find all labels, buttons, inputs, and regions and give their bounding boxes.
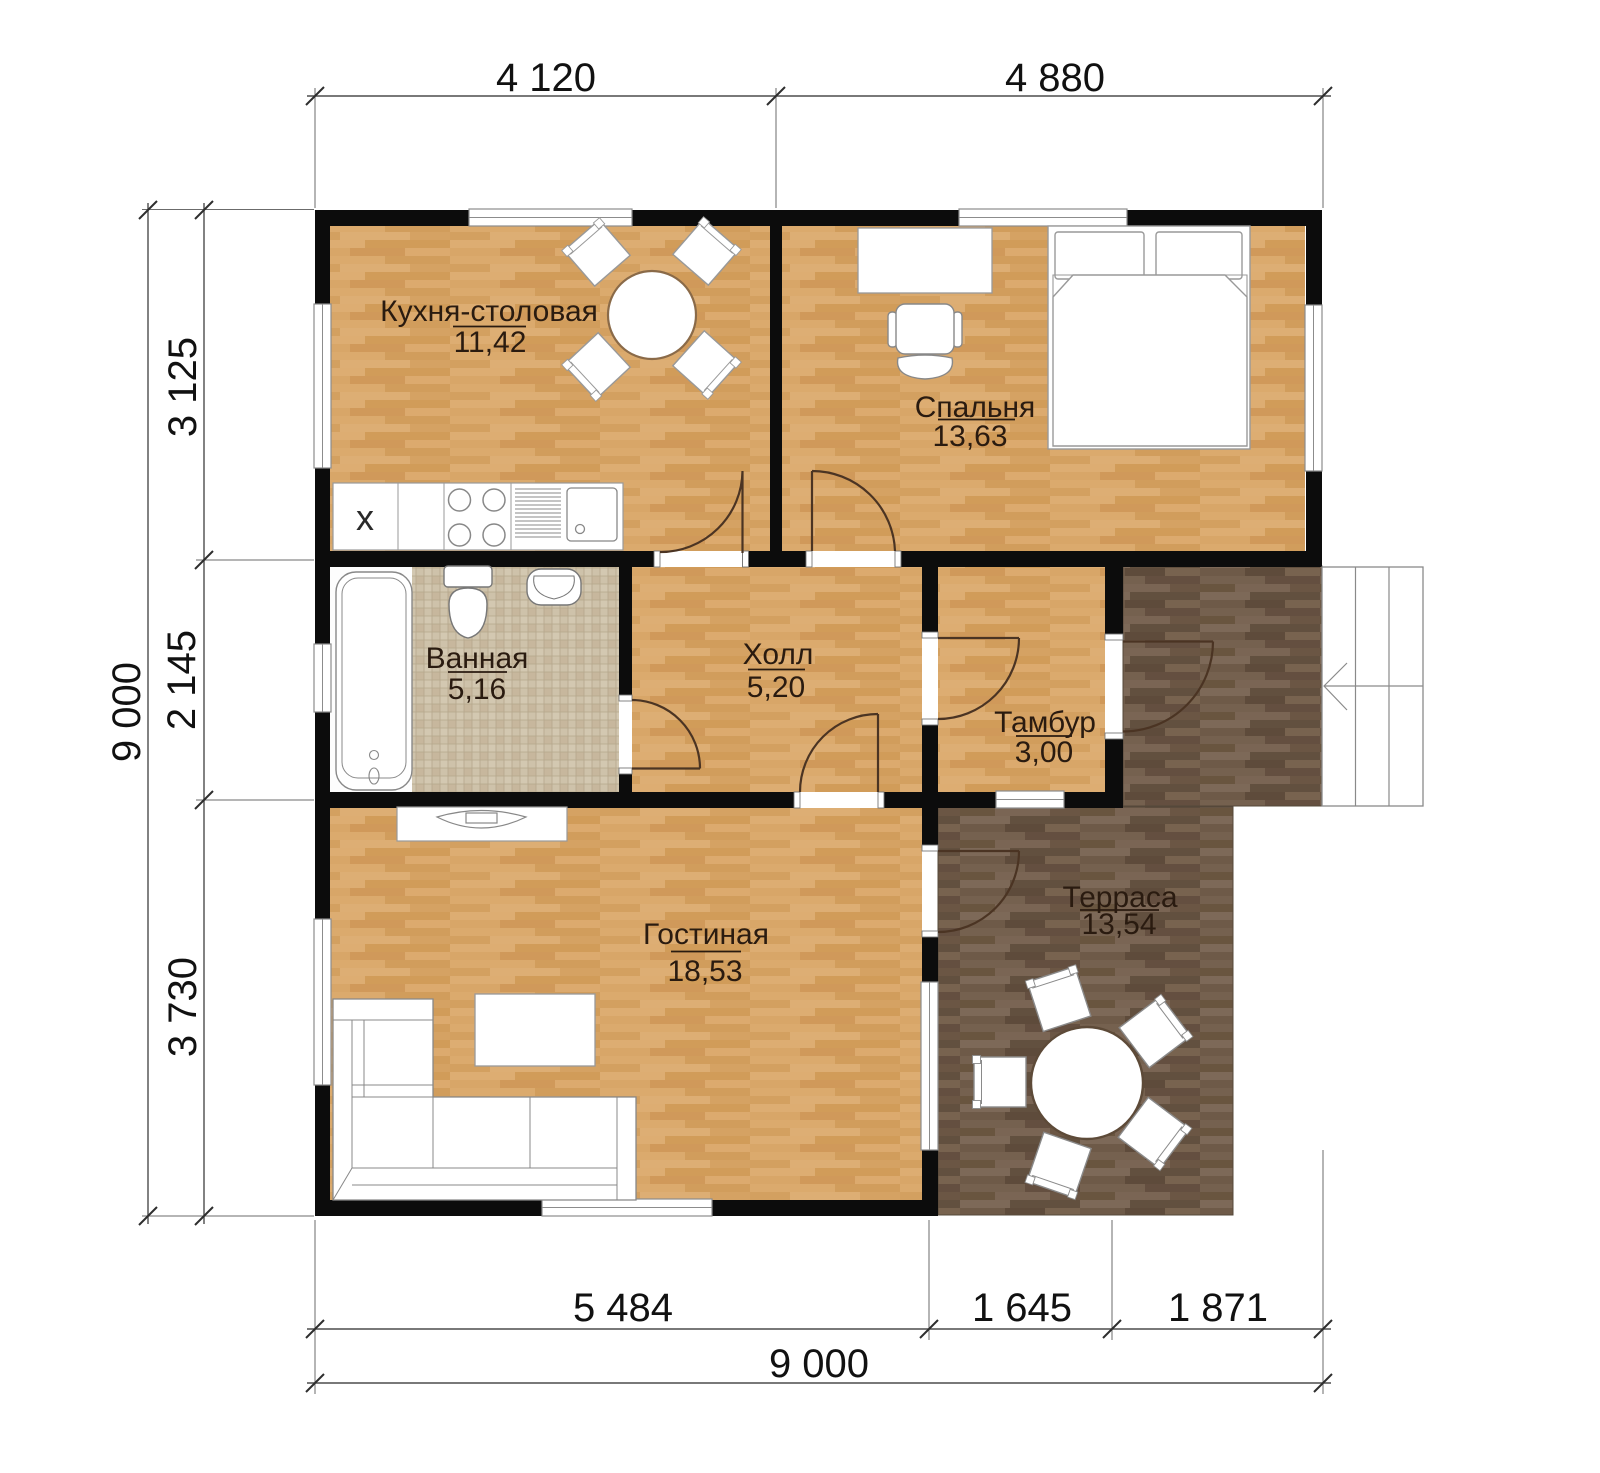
svg-text:Гостиная: Гостиная <box>643 918 769 951</box>
svg-text:9 000: 9 000 <box>769 1342 869 1386</box>
svg-text:x: x <box>356 497 374 538</box>
svg-text:3 730: 3 730 <box>161 957 205 1057</box>
svg-text:18,53: 18,53 <box>667 955 742 988</box>
svg-text:3 125: 3 125 <box>161 337 205 437</box>
svg-text:13,54: 13,54 <box>1081 908 1156 941</box>
svg-text:4 880: 4 880 <box>1005 56 1105 100</box>
svg-text:Тамбур: Тамбур <box>994 706 1096 739</box>
svg-text:11,42: 11,42 <box>454 326 527 359</box>
svg-text:9 000: 9 000 <box>105 662 149 762</box>
svg-text:13,63: 13,63 <box>932 420 1007 453</box>
svg-text:Холл: Холл <box>743 638 814 671</box>
svg-text:4 120: 4 120 <box>496 56 596 100</box>
svg-text:1 645: 1 645 <box>972 1286 1072 1330</box>
svg-text:2 145: 2 145 <box>160 630 204 730</box>
svg-text:5,16: 5,16 <box>448 673 506 706</box>
svg-text:3,00: 3,00 <box>1015 736 1073 769</box>
svg-text:1 871: 1 871 <box>1168 1286 1268 1330</box>
svg-text:Ванная: Ванная <box>426 642 529 675</box>
svg-text:5,20: 5,20 <box>747 671 805 704</box>
svg-text:Кухня-столовая: Кухня-столовая <box>380 295 598 328</box>
svg-text:5 484: 5 484 <box>573 1286 673 1330</box>
